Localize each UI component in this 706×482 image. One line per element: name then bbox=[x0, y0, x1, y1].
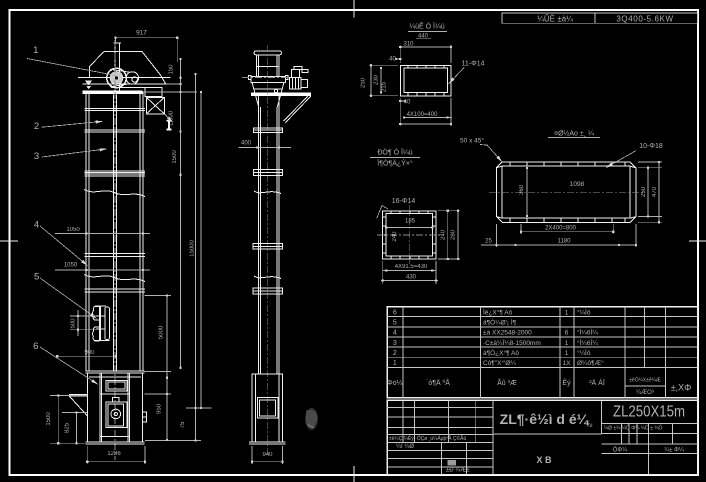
svg-text:Cô¶"X°'Ø¼: Cô¶"X°'Ø¼ bbox=[483, 359, 516, 367]
svg-text:470: 470 bbox=[652, 186, 658, 197]
svg-text:Ìê¿X°¶ Aô: Ìê¿X°¶ Aô bbox=[483, 307, 513, 316]
svg-text:1: 1 bbox=[565, 350, 569, 357]
svg-text:°Ì¼6Ì¼: °Ì¼6Ì¼ bbox=[577, 328, 598, 337]
svg-text:16-Φ14: 16-Φ14 bbox=[392, 198, 416, 205]
svg-text:1180: 1180 bbox=[558, 239, 572, 245]
svg-text:3Q400-5.6KW: 3Q400-5.6KW bbox=[616, 14, 673, 23]
svg-text:430: 430 bbox=[406, 275, 417, 281]
svg-text:¼± Φ¼: ¼± Φ¼ bbox=[664, 448, 685, 454]
svg-text:°¼Ìô: °¼Ìô bbox=[577, 348, 591, 357]
svg-text:5: 5 bbox=[393, 319, 397, 326]
svg-text:1: 1 bbox=[565, 340, 569, 347]
svg-text:11-Φ14: 11-Φ14 bbox=[462, 61, 485, 68]
svg-text:¼ÛÈ ±à¼: ¼ÛÈ ±à¼ bbox=[537, 14, 573, 23]
svg-text:3: 3 bbox=[34, 151, 39, 162]
svg-text:Φò¼: Φò¼ bbox=[387, 380, 402, 387]
svg-text:50 x 45°: 50 x 45° bbox=[460, 137, 484, 145]
svg-text:6: 6 bbox=[565, 330, 569, 337]
svg-text:940: 940 bbox=[262, 452, 273, 458]
svg-text:±Ð ¼Æ±: ±Ð ¼Æ± bbox=[446, 468, 470, 474]
svg-text:75: 75 bbox=[180, 421, 186, 428]
svg-text:¼Ì ¼Ø: ¼Ì ¼Ø bbox=[396, 443, 414, 450]
svg-text:á¶Ò¿X°¶ Aô: á¶Ò¿X°¶ Aô bbox=[483, 348, 519, 357]
svg-text:240: 240 bbox=[392, 231, 398, 242]
svg-text:ÖΦ¼: ÖΦ¼ bbox=[613, 447, 628, 454]
svg-text:1286: 1286 bbox=[107, 451, 121, 457]
svg-text:¼Ø ±¼ ¼Ó Φ¼ ¼Ó ± ¼Ó: ¼Ø ±¼ ¼Ó Φ¼ ¼Ó ± ¼Ó bbox=[604, 425, 662, 432]
svg-text:950: 950 bbox=[157, 403, 163, 414]
svg-text:¼ì: ¼ì bbox=[586, 423, 593, 429]
svg-text:250: 250 bbox=[361, 77, 367, 88]
svg-text:40: 40 bbox=[389, 57, 396, 63]
svg-text:1050: 1050 bbox=[66, 227, 80, 233]
svg-text:250: 250 bbox=[641, 186, 647, 197]
svg-text:40: 40 bbox=[404, 100, 411, 106]
svg-text:¼üÊ Ó Ì¼ü: ¼üÊ Ó Ì¼ü bbox=[409, 22, 445, 31]
svg-text:Ï¶Ò¶Ä¿Ý×°: Ï¶Ò¶Ä¿Ý×° bbox=[377, 159, 413, 168]
svg-text:215: 215 bbox=[382, 81, 388, 92]
svg-text:á¶Ò¼Ø'¡ Ì¶: á¶Ò¼Ø'¡ Ì¶ bbox=[483, 317, 517, 326]
svg-text:²Ä ÁÏ: ²Ä ÁÏ bbox=[589, 378, 605, 387]
svg-text:¼ÆÒ³: ¼ÆÒ³ bbox=[636, 389, 654, 396]
svg-text:ZL250X15m: ZL250X15m bbox=[613, 404, 685, 421]
svg-text:1: 1 bbox=[565, 309, 569, 316]
svg-text:´ó¶Ä ºÅ: ´ó¶Ä ºÅ bbox=[426, 378, 450, 387]
svg-text:230: 230 bbox=[374, 74, 380, 85]
svg-text:4: 4 bbox=[393, 330, 397, 337]
svg-text:±ê¼Ç ¼Êý ·ÖÇø ¸ü¼ÄμþºÅ Ç©Ãû: ±ê¼Ç ¼Êý ·ÖÇø ¸ü¼ÄμþºÅ Ç©Ãû bbox=[389, 434, 466, 442]
svg-text:2: 2 bbox=[393, 350, 397, 357]
svg-text:10-Φ18: 10-Φ18 bbox=[639, 143, 663, 150]
svg-text:·C±à¼Ì¼8-1500mm: ·C±à¼Ì¼8-1500mm bbox=[483, 338, 541, 347]
svg-text:1500: 1500 bbox=[46, 412, 52, 426]
svg-text:2X400=800: 2X400=800 bbox=[545, 226, 577, 232]
svg-text:±,XΦ: ±,XΦ bbox=[671, 383, 692, 393]
svg-text:°¼Ìô: °¼Ìô bbox=[577, 307, 591, 316]
svg-text:3: 3 bbox=[393, 340, 397, 347]
svg-text:±à XX2548-2000: ±à XX2548-2000 bbox=[483, 330, 532, 337]
svg-text:1X: 1X bbox=[563, 360, 572, 367]
svg-text:¤Ø½Ao ±¸ ¼: ¤Ø½Ao ±¸ ¼ bbox=[554, 130, 594, 138]
svg-text:500: 500 bbox=[71, 318, 77, 329]
svg-text:1: 1 bbox=[33, 45, 38, 56]
svg-text:1500: 1500 bbox=[172, 150, 178, 164]
svg-text:310: 310 bbox=[403, 42, 414, 48]
svg-text:Ãû ³Æ: Ãû ³Æ bbox=[497, 378, 517, 387]
svg-text:1050: 1050 bbox=[64, 263, 78, 269]
svg-text:5: 5 bbox=[34, 272, 39, 283]
svg-text:1098: 1098 bbox=[570, 181, 585, 188]
svg-text:1,500: 1,500 bbox=[169, 110, 175, 126]
svg-text:280: 280 bbox=[451, 229, 457, 240]
svg-text:ZL¶·ê½ì d é¼: ZL¶·ê½ì d é¼ bbox=[500, 411, 590, 427]
svg-text:360: 360 bbox=[519, 184, 525, 195]
svg-text:825: 825 bbox=[65, 422, 71, 433]
svg-text:°Ì¼6Ì¼: °Ì¼6Ì¼ bbox=[577, 338, 598, 347]
svg-text:400: 400 bbox=[241, 141, 252, 147]
svg-text:Ø¼ô¶Æ°: Ø¼ô¶Æ° bbox=[577, 359, 604, 367]
svg-text:150: 150 bbox=[169, 64, 175, 75]
svg-text:4X100=400: 4X100=400 bbox=[407, 112, 439, 118]
svg-text:4X91.5=430: 4X91.5=430 bbox=[395, 264, 428, 270]
svg-text:900: 900 bbox=[84, 350, 95, 356]
svg-text:5000: 5000 bbox=[159, 325, 165, 339]
svg-text:6: 6 bbox=[33, 341, 38, 352]
svg-text:Χ Β: Χ Β bbox=[536, 455, 552, 465]
svg-text:15000: 15000 bbox=[190, 239, 196, 256]
svg-text:1: 1 bbox=[393, 360, 397, 367]
svg-text:917: 917 bbox=[136, 30, 147, 37]
svg-text:Êý: Êý bbox=[562, 378, 571, 387]
svg-text:ÐÒ¶ Ó Ì¼ü: ÐÒ¶ Ó Ì¼ü bbox=[377, 148, 412, 157]
svg-text:2: 2 bbox=[34, 121, 39, 132]
svg-text:185: 185 bbox=[405, 219, 416, 225]
svg-text:25: 25 bbox=[485, 239, 492, 245]
svg-text:240: 240 bbox=[441, 229, 447, 240]
svg-text:4: 4 bbox=[34, 220, 39, 231]
svg-text:6: 6 bbox=[393, 309, 397, 316]
svg-text:±êÓ¼X±ê¼Æ: ±êÓ¼X±ê¼Æ bbox=[629, 377, 661, 384]
